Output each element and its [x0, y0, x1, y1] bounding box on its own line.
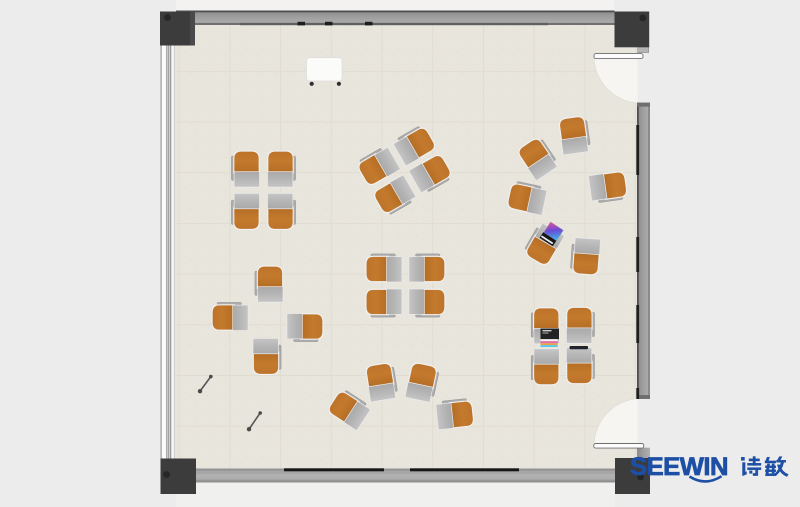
svg-text:SEEWIN: SEEWIN	[630, 454, 728, 481]
